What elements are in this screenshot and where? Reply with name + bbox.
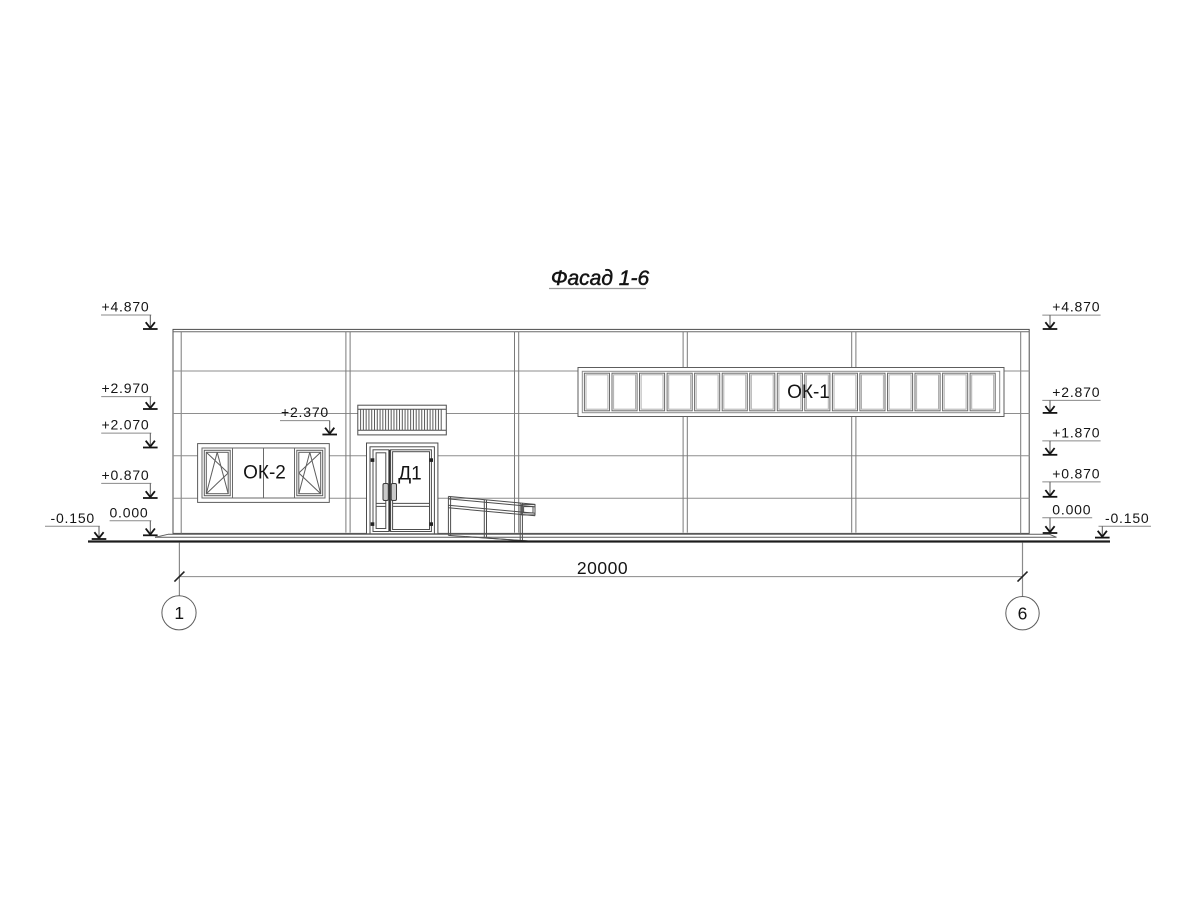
svg-text:Д1: Д1 <box>398 464 421 485</box>
svg-text:+1.870: +1.870 <box>1052 425 1100 441</box>
svg-text:-0.150: -0.150 <box>1105 510 1150 526</box>
svg-text:-0.150: -0.150 <box>51 510 96 526</box>
svg-text:ОК-1: ОК-1 <box>787 382 830 403</box>
svg-text:+2.070: +2.070 <box>101 417 149 433</box>
svg-text:+2.970: +2.970 <box>101 380 149 396</box>
svg-text:ОК-2: ОК-2 <box>243 463 286 484</box>
svg-text:0.000: 0.000 <box>1052 501 1091 517</box>
svg-text:Фасад 1-6: Фасад 1-6 <box>551 267 650 290</box>
svg-text:0.000: 0.000 <box>109 504 148 520</box>
svg-text:+0.870: +0.870 <box>101 467 149 483</box>
svg-text:+4.870: +4.870 <box>1052 299 1100 315</box>
svg-text:6: 6 <box>1018 603 1028 623</box>
svg-text:+4.870: +4.870 <box>101 299 149 315</box>
svg-text:+2.370: +2.370 <box>281 404 329 420</box>
svg-text:+2.870: +2.870 <box>1052 384 1100 400</box>
svg-text:+0.870: +0.870 <box>1052 466 1100 482</box>
svg-text:1: 1 <box>174 603 184 623</box>
svg-text:20000: 20000 <box>577 558 628 578</box>
